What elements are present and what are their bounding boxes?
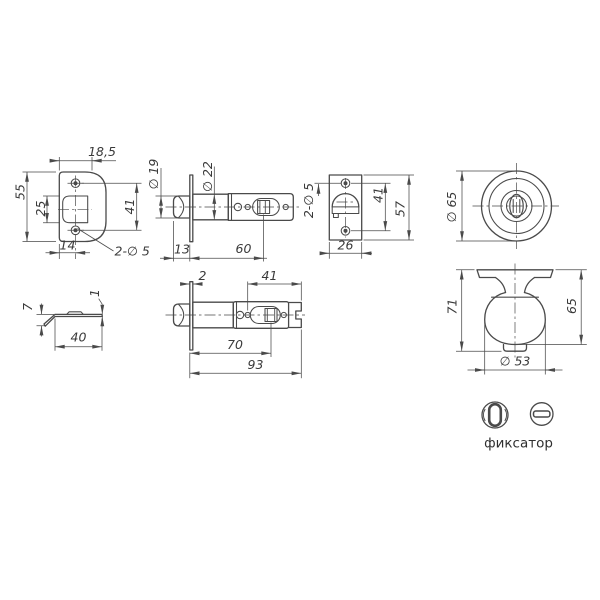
dim-hole-spacing: 41 [122, 199, 137, 215]
dim-bolt-diameter: ∅ 19 [146, 159, 161, 190]
view-latch-70: 2 41 70 93 [166, 268, 306, 378]
dim-housing-length: 41 [262, 268, 278, 283]
dim-plate-width: 26 [338, 237, 354, 252]
emergency-slot-icon-slot [534, 411, 550, 417]
strike-side-profile [44, 314, 102, 326]
dim-knob-height: 65 [564, 298, 579, 314]
view-strike-plate-front: 18,5 55 25 41 14 2-∅ 5 [13, 144, 150, 259]
view-faceplate-front: 2-∅ 5 41 57 26 [301, 175, 414, 259]
dim-total-length: 93 [248, 357, 264, 372]
technical-drawing-page: 18,5 55 25 41 14 2-∅ 5 [0, 0, 600, 600]
dim-bolt-projection: 13 [174, 242, 190, 257]
dim-tube-diameter: ∅ 22 [200, 161, 215, 192]
dim-width-top: 18,5 [88, 144, 116, 159]
dim-backset-60: 60 [236, 241, 252, 256]
strike-plate-outline [59, 172, 106, 242]
leader-line [99, 299, 103, 305]
dim-profile-height: 7 [20, 303, 35, 311]
turn-button-icon-arc [483, 409, 506, 420]
fixator-caption: фиксатор [484, 436, 553, 452]
dim-plate-height: 55 [13, 184, 28, 200]
dim-knob-diameter: ∅ 53 [500, 354, 531, 369]
dim-plate-height: 57 [393, 201, 408, 217]
extension-line [248, 282, 302, 311]
dim-faceplate-thickness: 2 [199, 268, 207, 283]
dim-width-bottom: 14 [60, 237, 76, 252]
dim-thickness: 1 [87, 289, 102, 297]
dim-plate-width: 40 [71, 330, 87, 345]
dim-opening-height: 25 [33, 201, 48, 217]
latch-bolt-tab [334, 214, 339, 218]
centerline [473, 163, 560, 249]
fixator-legend: фиксатор [482, 402, 553, 452]
dim-holes-note: 2-∅ 5 [115, 244, 150, 259]
turn-button-icon-oval [489, 404, 501, 426]
dim-rose-diameter: ∅ 65 [444, 192, 459, 223]
view-knob-side: 71 65 ∅ 53 [445, 264, 587, 375]
view-rose-front: ∅ 65 [444, 163, 559, 249]
turn-button-icon [482, 402, 508, 428]
view-strike-plate-side: 7 1 40 [20, 289, 102, 351]
dim-hole-spacing: 41 [371, 187, 386, 203]
leader-line [78, 229, 114, 252]
dim-backset-70: 70 [227, 337, 243, 352]
dim-total-height: 71 [445, 299, 460, 315]
view-latch-60: ∅ 19 ∅ 22 13 60 [146, 159, 301, 262]
dim-holes-note: 2-∅ 5 [301, 183, 316, 218]
technical-drawing-canvas: 18,5 55 25 41 14 2-∅ 5 [0, 0, 600, 600]
